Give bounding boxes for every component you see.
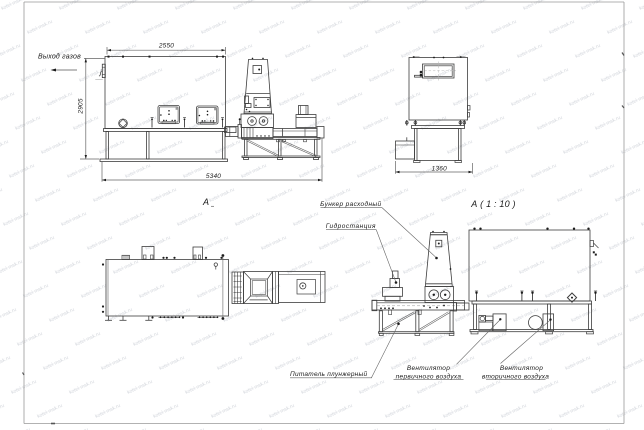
svg-text:первичного воздуха: первичного воздуха bbox=[396, 372, 462, 380]
svg-text:А: А bbox=[202, 197, 209, 207]
svg-text:2550: 2550 bbox=[158, 43, 174, 50]
svg-text:А ( 1 : 10 ): А ( 1 : 10 ) bbox=[470, 199, 515, 209]
svg-text:1360: 1360 bbox=[432, 165, 447, 172]
svg-text:Бункер расходный: Бункер расходный bbox=[320, 200, 381, 208]
svg-text:Питатель плунжерный: Питатель плунжерный bbox=[290, 370, 368, 378]
svg-text:Гидростанция: Гидростанция bbox=[326, 222, 376, 230]
svg-text:вторичного воздуха: вторичного воздуха bbox=[482, 372, 549, 380]
svg-text:5340: 5340 bbox=[206, 173, 221, 180]
svg-text:Вентилятор: Вентилятор bbox=[500, 365, 543, 372]
svg-text:Вентилятор: Вентилятор bbox=[407, 365, 450, 372]
svg-text:Выход газов: Выход газов bbox=[38, 53, 81, 61]
svg-text:2905: 2905 bbox=[77, 98, 84, 114]
